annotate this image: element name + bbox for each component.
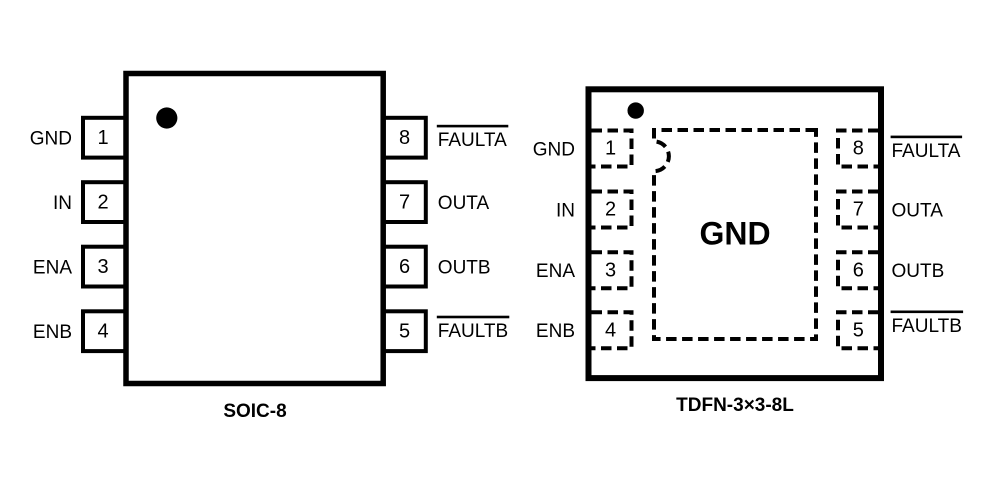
svg-text:7: 7 — [853, 199, 864, 221]
svg-text:6: 6 — [853, 260, 864, 282]
svg-text:GND: GND — [533, 139, 575, 160]
svg-text:TDFN-3×3-8L: TDFN-3×3-8L — [676, 395, 794, 416]
svg-text:IN: IN — [53, 193, 72, 214]
svg-text:IN: IN — [556, 200, 575, 221]
svg-text:6: 6 — [399, 256, 410, 278]
svg-text:8: 8 — [853, 138, 864, 160]
svg-text:OUTA: OUTA — [438, 193, 490, 214]
svg-text:5: 5 — [399, 320, 410, 342]
svg-text:FAULTA: FAULTA — [892, 141, 961, 162]
svg-text:FAULTB: FAULTB — [892, 316, 962, 337]
svg-text:ENA: ENA — [33, 258, 72, 279]
svg-text:4: 4 — [97, 320, 108, 342]
svg-text:OUTB: OUTB — [438, 258, 491, 279]
svg-text:OUTB: OUTB — [892, 261, 945, 282]
svg-text:7: 7 — [399, 191, 410, 213]
svg-text:8: 8 — [399, 127, 410, 149]
svg-text:SOIC-8: SOIC-8 — [223, 401, 286, 422]
svg-text:ENA: ENA — [536, 261, 575, 282]
svg-text:3: 3 — [97, 256, 108, 278]
svg-text:ENB: ENB — [33, 322, 72, 343]
svg-text:2: 2 — [605, 199, 616, 221]
svg-text:FAULTB: FAULTB — [438, 321, 508, 342]
svg-text:1: 1 — [605, 138, 616, 160]
svg-text:2: 2 — [97, 191, 108, 213]
svg-text:5: 5 — [853, 320, 864, 342]
svg-text:1: 1 — [97, 127, 108, 149]
svg-text:OUTA: OUTA — [892, 200, 944, 221]
svg-text:FAULTA: FAULTA — [438, 130, 507, 151]
svg-text:GND: GND — [30, 129, 72, 150]
svg-text:ENB: ENB — [536, 321, 575, 342]
svg-text:4: 4 — [605, 320, 616, 342]
svg-text:3: 3 — [605, 260, 616, 282]
svg-text:GND: GND — [699, 215, 770, 251]
